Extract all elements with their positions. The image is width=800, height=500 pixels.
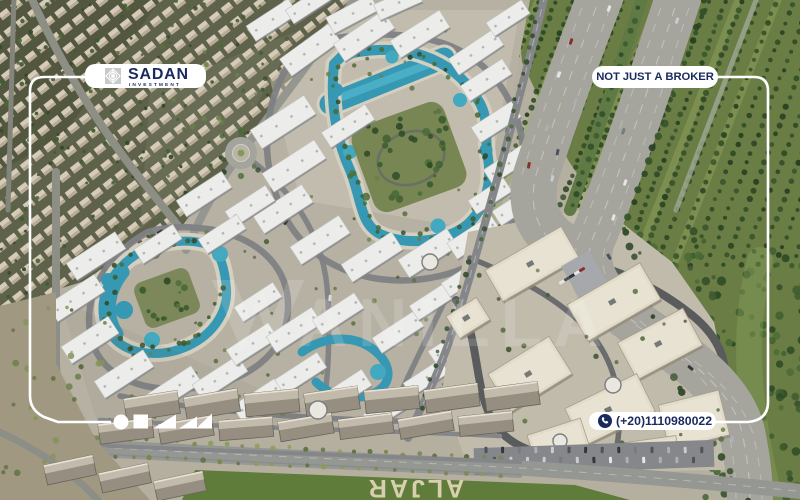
svg-text:ALJAR: ALJAR (366, 474, 464, 500)
svg-text:ANILLA: ANILLA (298, 285, 613, 361)
